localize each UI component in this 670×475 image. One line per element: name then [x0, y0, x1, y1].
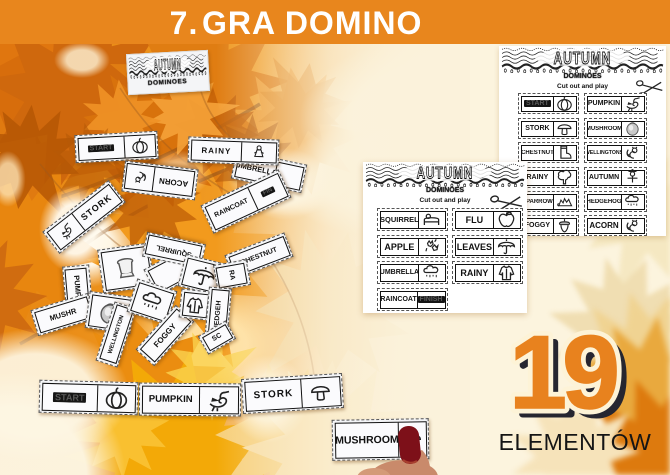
svg-text:9: 9 [562, 315, 620, 425]
svg-text:1: 1 [509, 315, 567, 425]
